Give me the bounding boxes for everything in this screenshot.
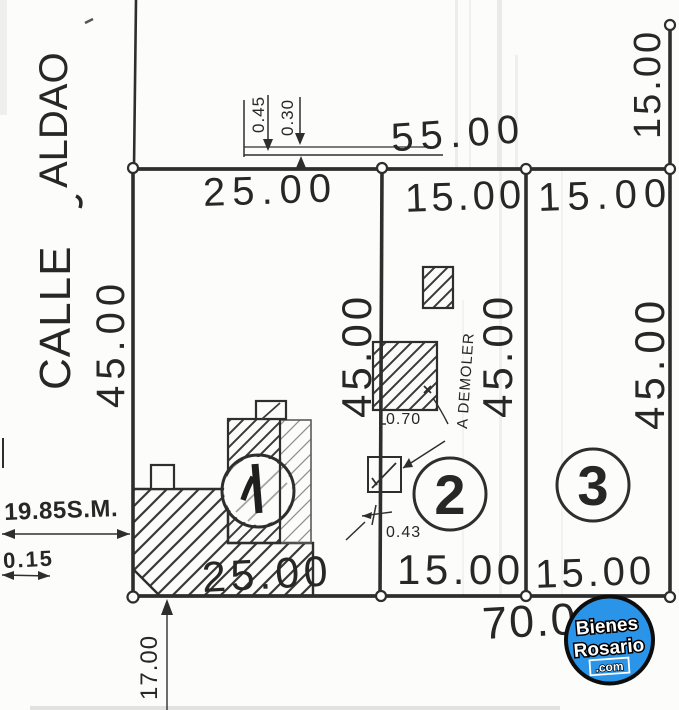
svg-text:15.00: 15.00 (404, 173, 526, 221)
svg-text:15.00: 15.00 (397, 546, 525, 593)
svg-text:3: 3 (577, 454, 608, 517)
svg-text:45.00: 45.00 (89, 278, 133, 408)
svg-text:0.15: 0.15 (2, 546, 54, 574)
svg-text:0.30: 0.30 (278, 99, 297, 136)
svg-text:15.00: 15.00 (627, 29, 669, 139)
svg-text:0.45: 0.45 (249, 96, 268, 133)
svg-text:25.00: 25.00 (201, 547, 333, 602)
svg-text:45.00: 45.00 (626, 295, 673, 430)
svg-text:0.70: 0.70 (386, 411, 421, 428)
svg-text:2: 2 (434, 463, 465, 526)
svg-text:15.00: 15.00 (537, 171, 674, 220)
svg-text:0.43: 0.43 (386, 524, 421, 541)
svg-text:19.85S.M.: 19.85S.M. (4, 495, 119, 526)
svg-text:CALLE: CALLE (31, 246, 80, 390)
svg-text:45.00: 45.00 (333, 293, 380, 418)
svg-text:17.00: 17.00 (136, 635, 163, 700)
svg-text:55.00: 55.00 (390, 107, 528, 160)
svg-text:.com: .com (595, 659, 624, 675)
svg-text:15.00: 15.00 (534, 549, 656, 597)
svg-text:45.00: 45.00 (474, 293, 521, 418)
svg-text:25.00: 25.00 (202, 166, 339, 215)
svg-text:ALDAO: ALDAO (32, 52, 76, 188)
